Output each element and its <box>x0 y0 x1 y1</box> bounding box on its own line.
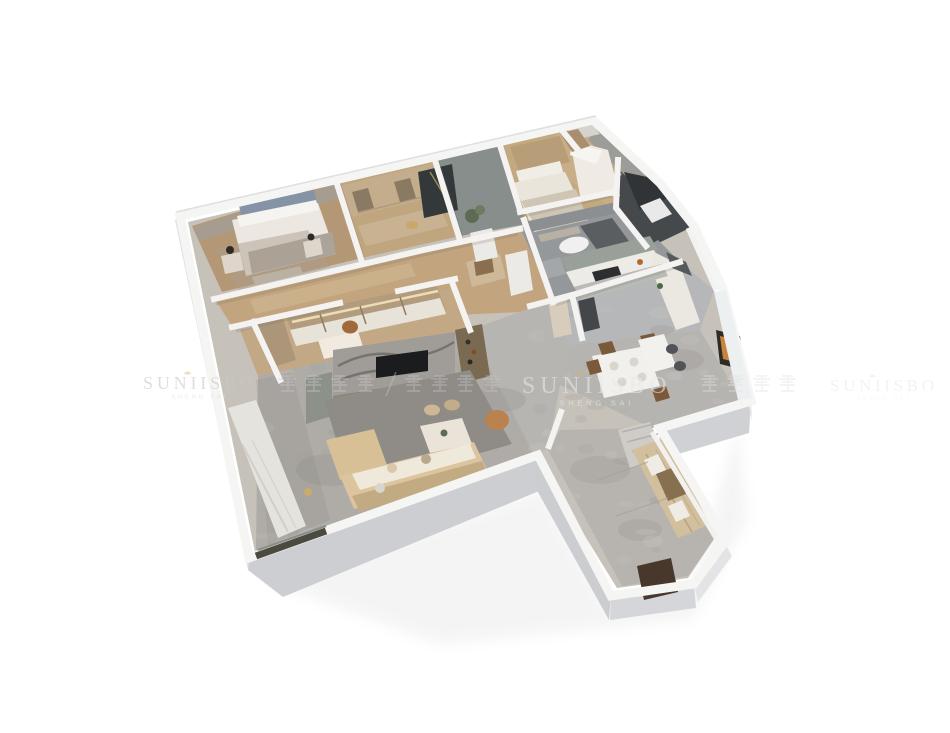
svg-text:SUNIISBO: SUNIISBO <box>522 373 672 399</box>
svg-text:SHENG SAI: SHENG SAI <box>857 396 911 402</box>
svg-text:SHENG SAI: SHENG SAI <box>560 399 635 408</box>
svg-text:SUNIISBO: SUNIISBO <box>830 376 938 395</box>
svg-text:SHENG SAI: SHENG SAI <box>172 395 229 401</box>
svg-text:SUNIISBO: SUNIISBO <box>143 373 257 393</box>
